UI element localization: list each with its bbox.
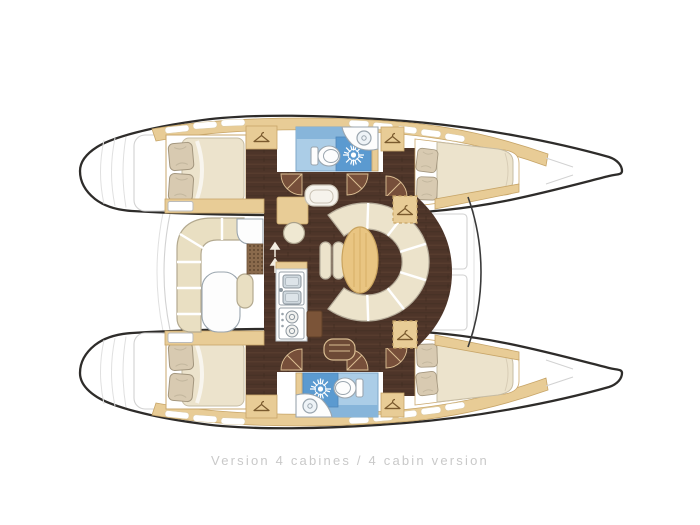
galley-stove [279,308,304,339]
salon-bench [320,242,331,279]
hanging-locker [393,196,417,223]
floor-plan-page: Version 4 cabines / 4 cabin version [0,0,700,525]
doormat-icon [247,244,263,274]
stove-icon [286,311,298,323]
galley-cabinet [307,311,322,337]
cockpit-locker [237,219,263,244]
bottom-head [296,373,378,417]
nav-stool [284,223,305,244]
salon [165,185,452,360]
aft-door [168,333,193,343]
hanging-locker [393,321,417,348]
cockpit-coaming [157,213,170,331]
cockpit-seat [237,274,253,308]
aft-door [168,202,193,212]
nav-desk [277,197,308,224]
top-head [296,127,378,171]
galley-sink [279,272,304,305]
cockpit [177,218,263,332]
cockpit-table [202,272,240,332]
caption: Version 4 cabines / 4 cabin version [0,453,700,468]
boat-floor-plan-svg [0,0,700,525]
